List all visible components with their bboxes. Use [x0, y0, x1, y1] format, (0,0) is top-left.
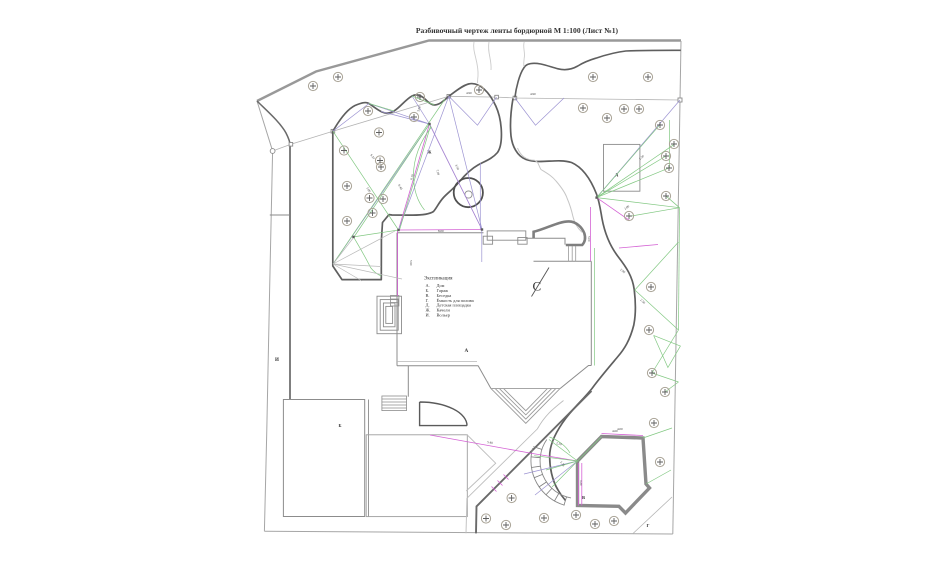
svg-text:8.00: 8.00	[438, 229, 444, 233]
svg-text:В: В	[582, 495, 585, 500]
svg-text:Г: Г	[647, 523, 650, 528]
svg-text:5.00: 5.00	[587, 236, 591, 242]
svg-text:4.00: 4.00	[617, 427, 623, 431]
svg-text:Б: Б	[339, 423, 342, 428]
svg-text:4.90: 4.90	[530, 92, 536, 96]
svg-text:И: И	[275, 358, 279, 363]
svg-text:5.60: 5.60	[409, 260, 413, 266]
svg-text:И.: И.	[426, 313, 430, 318]
svg-text:Вольер: Вольер	[437, 313, 451, 318]
svg-text:С: С	[533, 279, 542, 294]
svg-text:Разбивочный чертеж ленты бордю: Разбивочный чертеж ленты бордюрной М 1:1…	[416, 26, 619, 35]
svg-text:3.20: 3.20	[579, 480, 583, 486]
svg-text:А: А	[465, 348, 469, 354]
svg-text:4.90: 4.90	[466, 91, 472, 95]
svg-text:Экспликация: Экспликация	[424, 276, 453, 282]
